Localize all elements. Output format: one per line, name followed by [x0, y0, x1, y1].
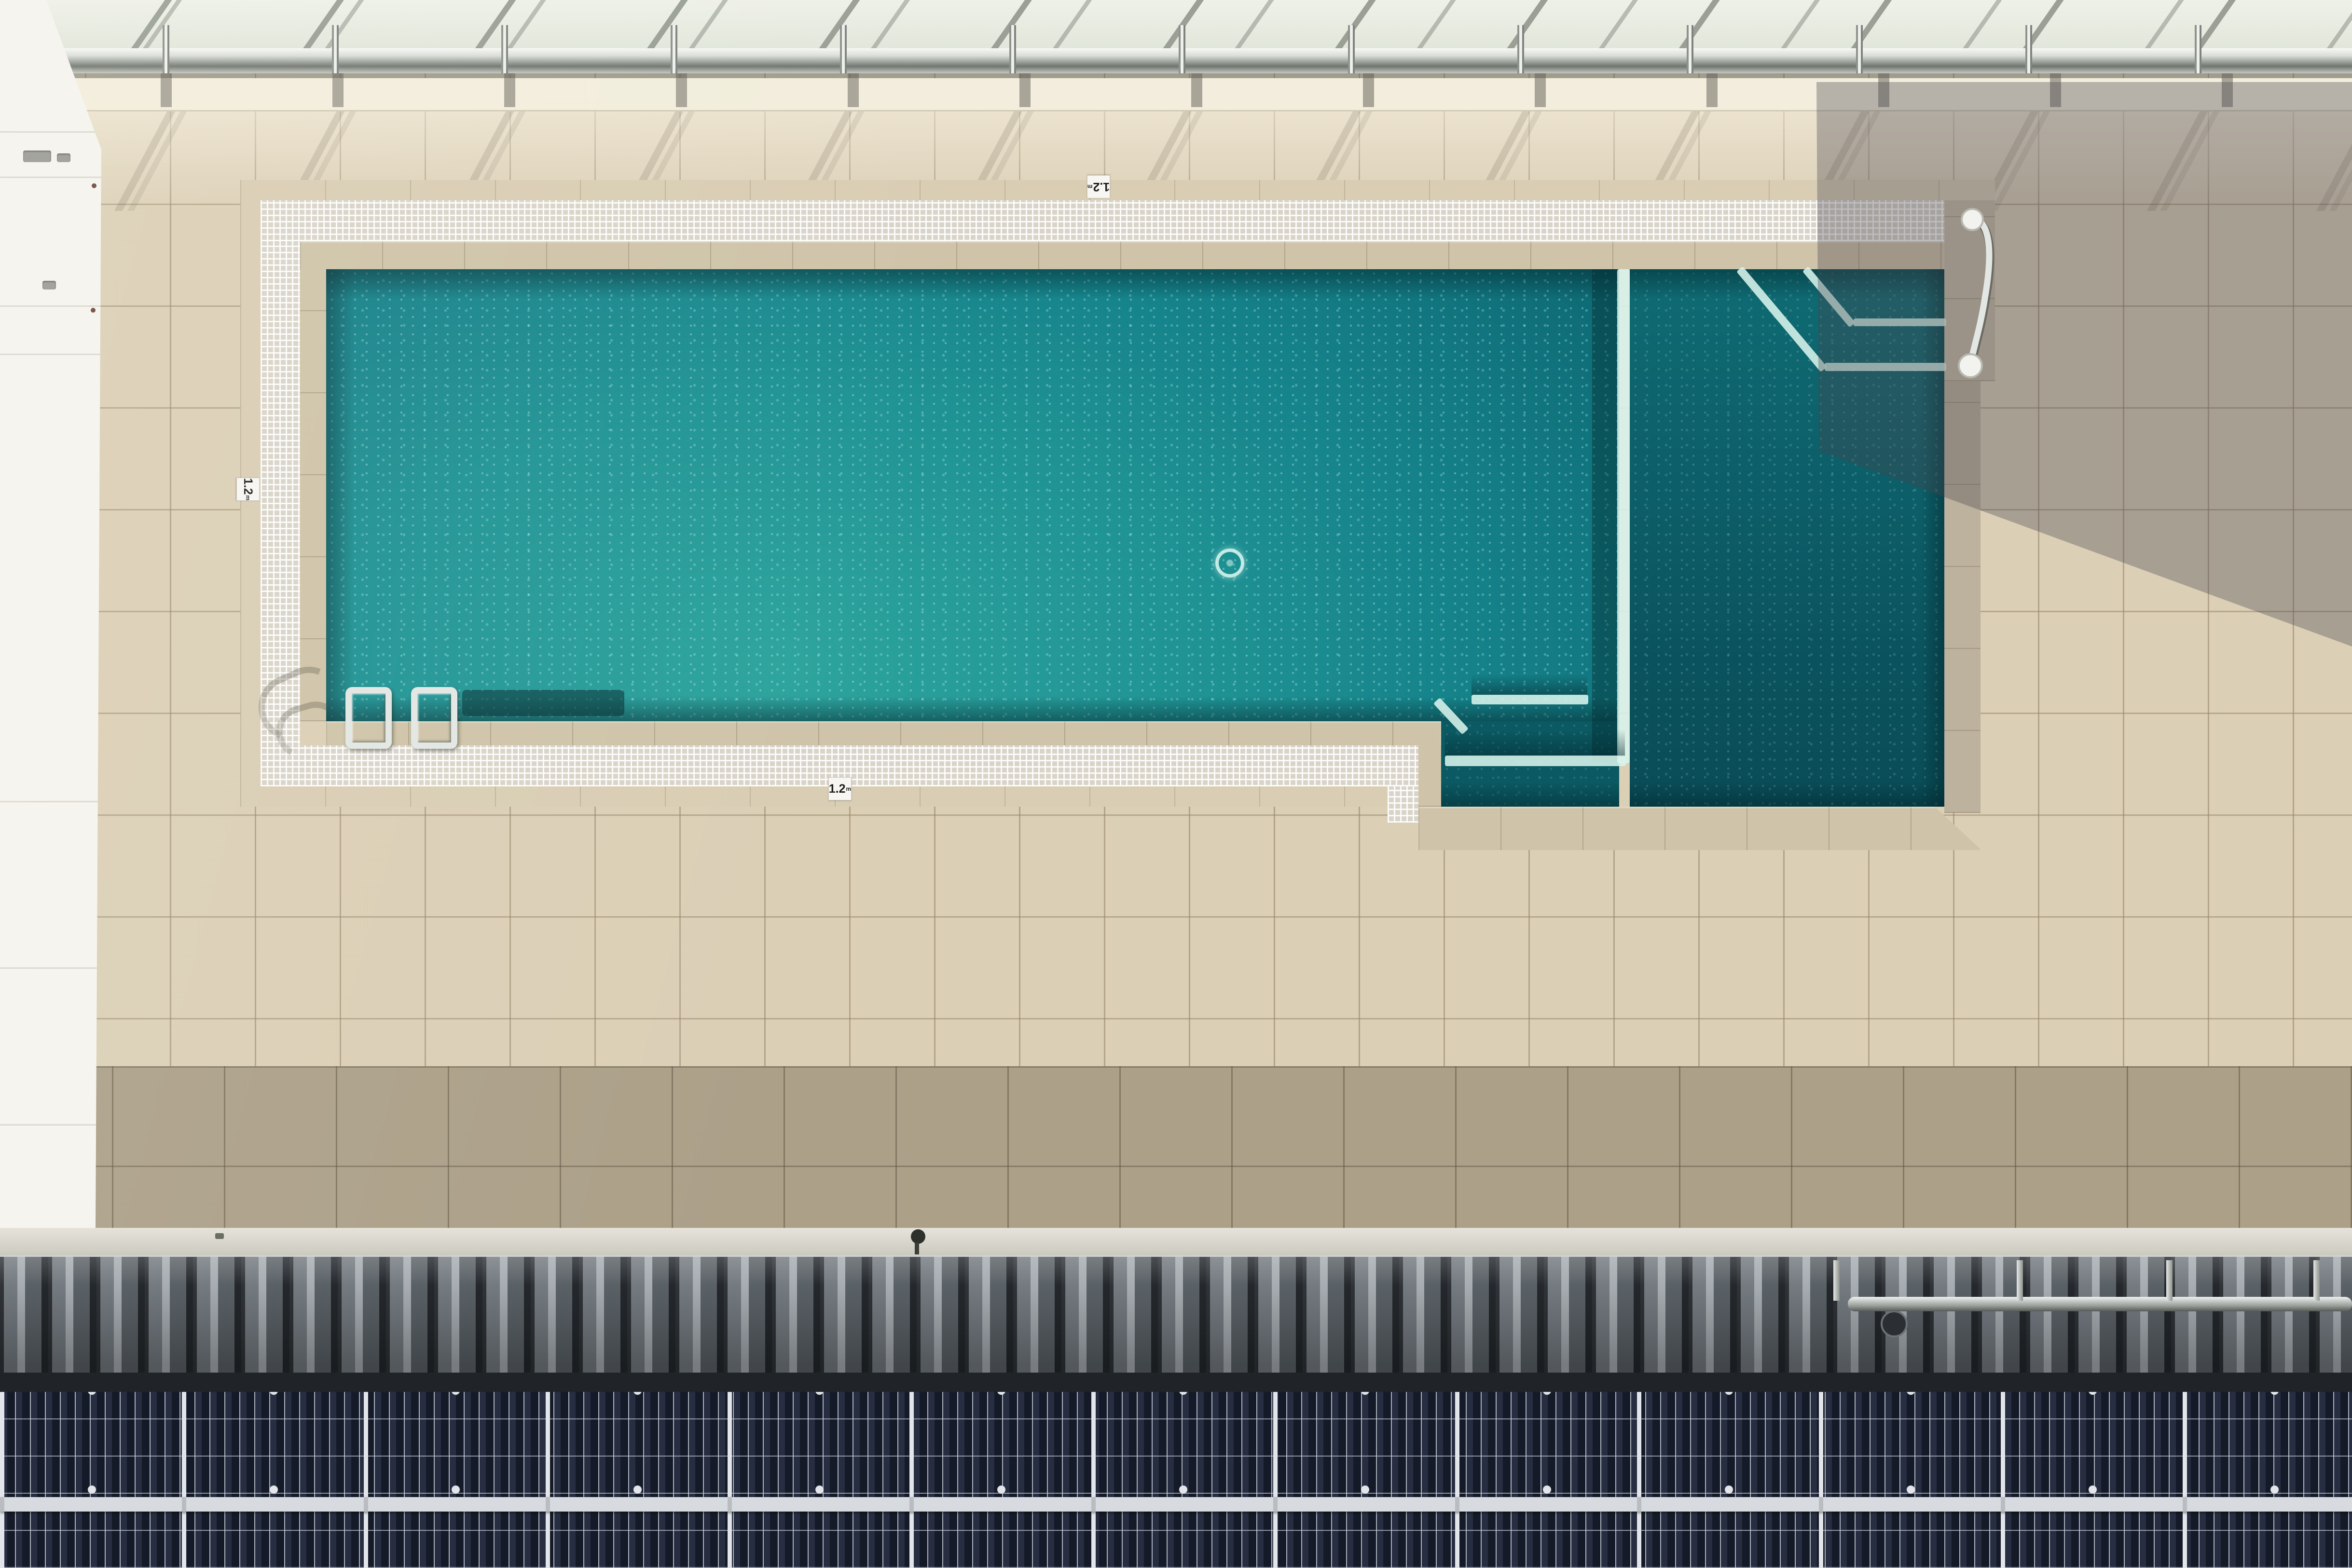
- water-edge-shadow-bottom: [1630, 782, 1944, 807]
- solar-row-gap: [0, 1497, 2352, 1512]
- depth-unit: m: [846, 786, 852, 792]
- pool-water-deep-section: [1630, 269, 1944, 807]
- deck-lower-band: [0, 1066, 2352, 1228]
- pipe-bracket: [2166, 1260, 2173, 1301]
- wall-joint: [0, 801, 102, 802]
- corner-step-stripe: [1825, 363, 1946, 371]
- water-edge-shadow-bottom: [1441, 782, 1619, 807]
- mosaic-border-notch: [1388, 786, 1418, 823]
- pool-drain: [1215, 549, 1244, 578]
- depth-marker-left: 1.2m: [236, 478, 260, 501]
- ladder-grab-rail: [411, 687, 457, 749]
- depth-marker-bottom: 1.2m: [828, 777, 852, 800]
- pool-handrail: [1939, 188, 2026, 391]
- coping-left: [300, 269, 326, 721]
- mosaic-border-top: [261, 200, 1944, 241]
- gutter-fitting: [215, 1233, 224, 1239]
- pipe-fitting: [911, 1229, 925, 1244]
- corrugated-walkway: [0, 1255, 2352, 1374]
- handrail-flange: [1962, 209, 1983, 230]
- coping-notch: [1418, 745, 1441, 807]
- railing-posts: [0, 25, 2352, 73]
- step-riser-shadow-vertical: [1592, 269, 1619, 762]
- aerial-pool-photo: 1.2m 1.2m 1.2m: [0, 0, 2352, 1568]
- pipe-bracket: [2313, 1260, 2320, 1301]
- ladder-step-dark: [462, 690, 624, 716]
- ladder-grab-rail: [345, 687, 392, 749]
- depth-value: 1.2: [829, 783, 846, 795]
- pool-water-main: [326, 269, 1619, 721]
- panel-gap-shadow: [0, 1373, 2352, 1392]
- step-edge-stripe: [1472, 695, 1588, 704]
- coping-top: [300, 241, 1944, 269]
- coping-bottom-main: [326, 721, 1441, 745]
- wall-joint: [0, 967, 102, 969]
- corner-step-stripe: [1854, 318, 1946, 326]
- white-wall: [0, 0, 102, 1228]
- roof-vent-cap: [1881, 1310, 1908, 1337]
- depth-value: 1.2: [1093, 181, 1110, 193]
- wall-joint: [0, 131, 102, 133]
- coping-bottom-right: [1418, 807, 1981, 850]
- pipe-bracket: [1833, 1260, 1840, 1301]
- step-edge-stripe-vertical: [1617, 269, 1630, 763]
- pipe-bracket: [2017, 1260, 2023, 1301]
- wall-vent: [23, 151, 51, 162]
- wall-joint: [0, 1124, 102, 1126]
- water-sparkle: [326, 269, 1619, 721]
- wall-vent: [57, 153, 70, 162]
- water-edge-shadow-top: [1630, 269, 1944, 299]
- step-edge-stripe: [1445, 756, 1626, 766]
- wall-joint: [0, 177, 102, 178]
- step-riser-shadow: [1445, 729, 1625, 756]
- water-sparkle: [1630, 269, 1944, 807]
- step-riser-shadow: [1472, 674, 1587, 696]
- water-edge-shadow-top: [326, 269, 1619, 299]
- coping-right-edge: [1944, 381, 1981, 813]
- handrail-flange: [1959, 354, 1982, 377]
- wall-fixture-dot: [92, 183, 96, 188]
- depth-marker-top: 1.2m: [1087, 175, 1110, 198]
- railing-post-feet: [0, 73, 2352, 107]
- wall-fixture-dot: [91, 308, 96, 313]
- depth-value: 1.2: [242, 478, 254, 495]
- pool-border-outer-left: [240, 200, 261, 807]
- pipe-fitting-stem: [915, 1243, 919, 1254]
- depth-unit: m: [1087, 184, 1093, 190]
- roof-service-pipe: [1848, 1297, 2352, 1311]
- depth-unit: m: [245, 495, 251, 501]
- pool-border-outer-top: [240, 180, 1995, 200]
- wall-joint: [0, 354, 102, 355]
- wall-vent: [42, 281, 56, 289]
- water-edge-shadow-left: [326, 269, 354, 721]
- solar-panel-array: [0, 1392, 2352, 1568]
- gutter-strip: [0, 1228, 2352, 1255]
- wall-joint: [0, 305, 102, 307]
